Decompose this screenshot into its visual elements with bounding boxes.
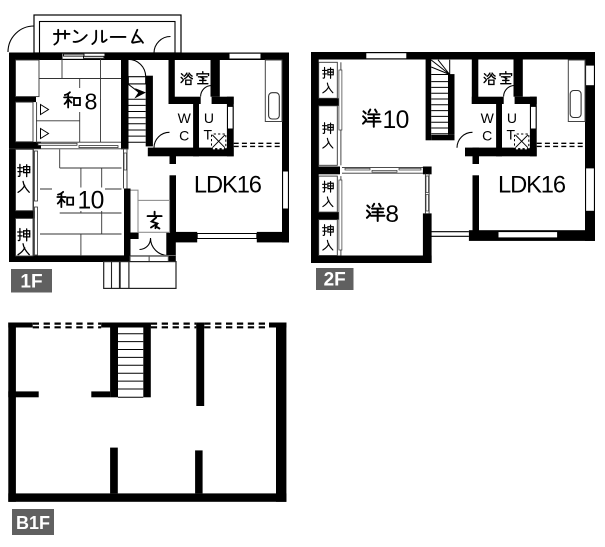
svg-text:2F: 2F [324, 269, 346, 290]
svg-text:C: C [482, 127, 492, 143]
svg-text:8: 8 [84, 88, 97, 114]
svg-text:W: W [481, 110, 495, 126]
svg-text:LDK16: LDK16 [194, 172, 262, 198]
svg-text:10: 10 [382, 107, 408, 134]
svg-text:C: C [179, 127, 189, 143]
svg-text:U: U [204, 110, 214, 126]
svg-text:U: U [507, 110, 517, 126]
svg-text:B1F: B1F [16, 513, 50, 533]
svg-text:W: W [178, 110, 192, 126]
svg-text:LDK16: LDK16 [498, 172, 566, 198]
svg-text:10: 10 [77, 187, 103, 214]
svg-text:1F: 1F [20, 272, 42, 293]
svg-text:8: 8 [385, 201, 399, 228]
